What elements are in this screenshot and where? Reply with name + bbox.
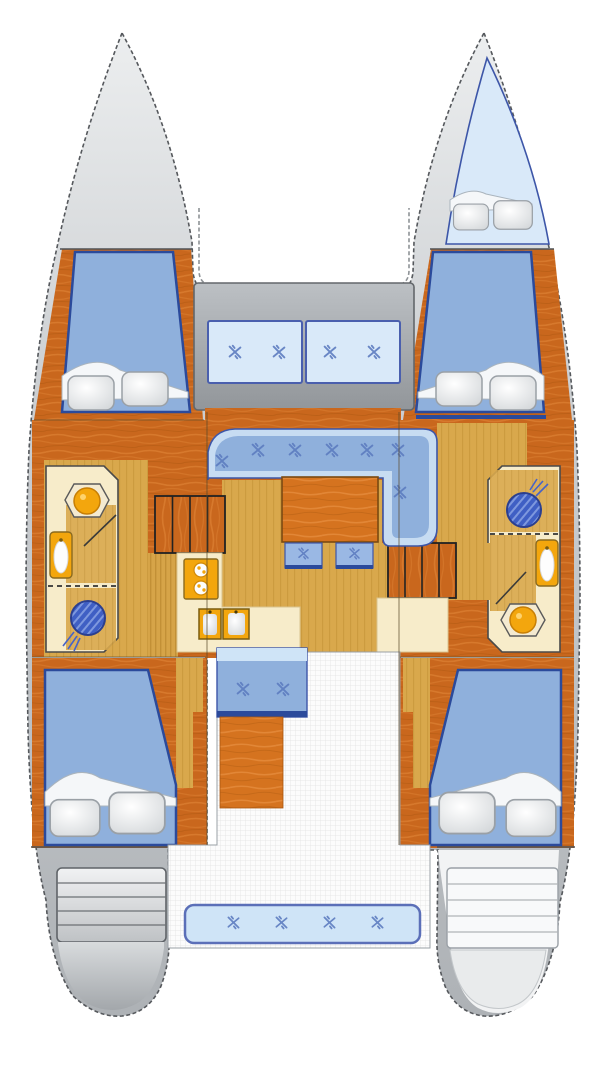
pillow (109, 792, 165, 833)
port-head (46, 466, 118, 652)
cushion (208, 321, 302, 383)
pillow (68, 376, 114, 410)
catamaran-floor-plan (0, 0, 606, 1080)
foredeck (194, 208, 414, 410)
floor-plan-canvas (0, 0, 606, 1080)
sink (536, 540, 558, 586)
pillow (494, 201, 533, 230)
stool (285, 543, 322, 568)
pillow (439, 792, 495, 833)
salon-table (282, 477, 378, 542)
nav-desk (377, 598, 448, 652)
stool (336, 543, 373, 568)
cushion (306, 321, 400, 383)
pillow (454, 204, 489, 230)
pillow (506, 800, 556, 837)
stove (184, 559, 218, 599)
cockpit-table (220, 717, 283, 808)
port-forward-cabin (34, 249, 203, 420)
pillow (436, 372, 482, 406)
pillow (490, 376, 536, 410)
starboard-aft-cabin (399, 658, 575, 848)
starboard-forward-cabin (403, 249, 572, 420)
companionway-steps-starboard (388, 543, 456, 598)
port-transom (57, 868, 166, 1010)
aft-bench (217, 648, 307, 717)
pillow (122, 372, 168, 406)
port-transom-steps (57, 868, 166, 942)
port-aft-cabin (31, 658, 207, 848)
companionway-steps-port (155, 496, 225, 553)
starboard-head (488, 466, 560, 652)
trampoline (199, 208, 409, 285)
starboard-transom-steps (447, 868, 558, 948)
toilet (501, 604, 545, 636)
toilet (65, 484, 109, 517)
pillow (50, 800, 100, 837)
sink (50, 532, 72, 578)
stern-bench (185, 905, 420, 943)
